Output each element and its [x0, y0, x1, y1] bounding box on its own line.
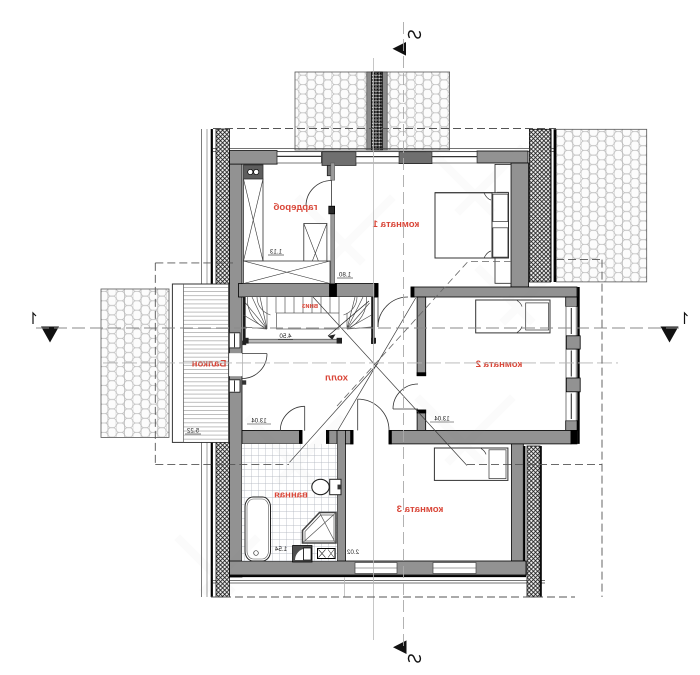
svg-text:Балкон: Балкон — [191, 359, 226, 370]
svg-text:13.04: 13.04 — [434, 416, 450, 423]
svg-text:холл: холл — [325, 373, 348, 384]
svg-text:2.02: 2.02 — [346, 549, 359, 556]
svg-text:4.50: 4.50 — [279, 333, 292, 340]
svg-text:1.80: 1.80 — [338, 272, 351, 279]
svg-text:ванная: ванная — [274, 490, 308, 501]
svg-text:комната 2: комната 2 — [476, 359, 523, 370]
svg-text:13.04: 13.04 — [251, 418, 267, 425]
svg-text:гардероб: гардероб — [273, 202, 317, 213]
svg-text:5.22: 5.22 — [186, 428, 199, 435]
svg-text:1.54: 1.54 — [274, 546, 287, 553]
svg-text:комната 1: комната 1 — [372, 219, 419, 230]
svg-text:1.13: 1.13 — [269, 249, 282, 256]
svg-text:вниз: вниз — [301, 303, 318, 310]
